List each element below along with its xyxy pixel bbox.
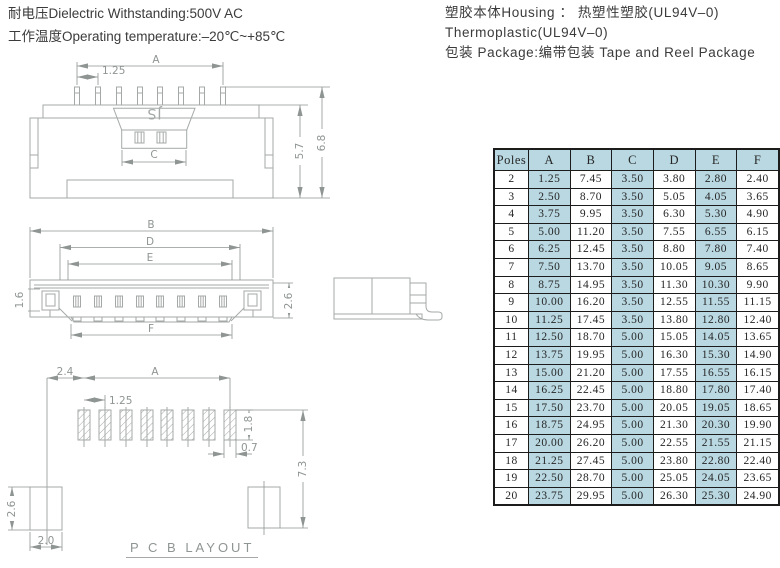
table-row: 77.5013.703.5010.059.058.65 bbox=[494, 258, 779, 276]
table-cell: 20.30 bbox=[695, 417, 737, 435]
table-cell: 26.30 bbox=[653, 487, 695, 505]
spec-line-withstanding: 耐电压Dielectric Withstanding:500V AC bbox=[8, 2, 285, 25]
key-details bbox=[135, 132, 166, 143]
table-cell: 8 bbox=[494, 276, 528, 294]
table-row: 1213.7519.955.0016.3015.3014.90 bbox=[494, 346, 779, 364]
table-cell: 6.15 bbox=[737, 223, 779, 241]
column-header: A bbox=[528, 149, 570, 171]
table-row: 1720.0026.205.0022.5521.5521.15 bbox=[494, 434, 779, 452]
table-cell: 5 bbox=[494, 223, 528, 241]
dimension-table: PolesABCDEF21.257.453.503.802.802.4032.5… bbox=[493, 148, 780, 506]
table-cell: 25.30 bbox=[695, 487, 737, 505]
pcb-pitch-label: 1.25 bbox=[109, 395, 132, 407]
dim-b: B bbox=[30, 219, 273, 278]
table-cell: 29.95 bbox=[570, 487, 612, 505]
column-header: D bbox=[653, 149, 695, 171]
table-cell: 1.25 bbox=[528, 171, 570, 189]
table-cell: 13.80 bbox=[653, 311, 695, 329]
top-outline bbox=[30, 280, 273, 322]
table-cell: 12.80 bbox=[695, 311, 737, 329]
table-row: 1011.2517.453.5013.8012.8012.40 bbox=[494, 311, 779, 329]
smt-foot bbox=[416, 303, 442, 320]
table-cell: 17.80 bbox=[695, 382, 737, 400]
table-cell: 6.25 bbox=[528, 241, 570, 259]
front-pitch-label: 1.25 bbox=[102, 65, 125, 77]
dim-c: C bbox=[122, 149, 186, 166]
table-cell: 2.40 bbox=[737, 171, 779, 189]
table-cell: 14.90 bbox=[737, 346, 779, 364]
table-cell: 18.75 bbox=[528, 417, 570, 435]
table-cell: 22.40 bbox=[737, 452, 779, 470]
table-cell: 14 bbox=[494, 382, 528, 400]
table-row: 1416.2522.455.0018.8017.8017.40 bbox=[494, 382, 779, 400]
table-cell: 2 bbox=[494, 171, 528, 189]
table-cell: 16.55 bbox=[695, 364, 737, 382]
pcb-offset-label: 2.4 bbox=[57, 366, 74, 378]
table-cell: 6.30 bbox=[653, 206, 695, 224]
table-cell: 13.75 bbox=[528, 346, 570, 364]
table-cell: 12 bbox=[494, 346, 528, 364]
table-cell: 26.20 bbox=[570, 434, 612, 452]
table-cell: 18 bbox=[494, 452, 528, 470]
table-cell: 22.80 bbox=[695, 452, 737, 470]
table-cell: 5.00 bbox=[612, 487, 654, 505]
table-row: 88.7514.953.5011.3010.309.90 bbox=[494, 276, 779, 294]
top-dim-e-label: E bbox=[147, 252, 154, 264]
table-cell: 18.80 bbox=[653, 382, 695, 400]
table-row: 1922.5028.705.0025.0524.0523.65 bbox=[494, 470, 779, 488]
front-dim-c-label: C bbox=[150, 149, 157, 161]
table-cell: 12.45 bbox=[570, 241, 612, 259]
table-cell: 19.95 bbox=[570, 346, 612, 364]
table-cell: 4.90 bbox=[737, 206, 779, 224]
table-cell: 21.25 bbox=[528, 452, 570, 470]
front-dim-a-label: A bbox=[152, 55, 160, 66]
table-cell: 12.40 bbox=[737, 311, 779, 329]
top-h-right-label: 2.6 bbox=[283, 292, 295, 309]
dim-e: E bbox=[68, 252, 232, 280]
table-cell: 3.50 bbox=[612, 294, 654, 312]
table-cell: 5.00 bbox=[612, 329, 654, 347]
table-cell: 8.75 bbox=[528, 276, 570, 294]
table-cell: 9.95 bbox=[570, 206, 612, 224]
solder-tails bbox=[73, 317, 227, 321]
table-cell: 23.70 bbox=[570, 399, 612, 417]
table-cell: 15.05 bbox=[653, 329, 695, 347]
front-h-body-label: 5.7 bbox=[294, 143, 306, 160]
dim-left-16: 1.6 bbox=[12, 288, 40, 312]
table-cell: 10.30 bbox=[695, 276, 737, 294]
table-cell: 15.00 bbox=[528, 364, 570, 382]
pcb-layout-title: P C B LAYOUT bbox=[126, 540, 258, 558]
table-cell: 24.90 bbox=[737, 487, 779, 505]
table-cell: 19 bbox=[494, 470, 528, 488]
table-cell: 14.95 bbox=[570, 276, 612, 294]
dim-offset-24: 2.4 bbox=[47, 366, 84, 378]
table-header-row: PolesABCDEF bbox=[494, 149, 779, 171]
table-cell: 3.65 bbox=[737, 188, 779, 206]
dim-a: A bbox=[77, 55, 223, 85]
table-cell: 10 bbox=[494, 311, 528, 329]
table-row: 66.2512.453.508.807.807.40 bbox=[494, 241, 779, 259]
dim-anchor-height: 2.6 bbox=[5, 487, 30, 530]
table-cell: 8.65 bbox=[737, 258, 779, 276]
spec-line-package: 包装 Package:编带包装 Tape and Reel Package bbox=[445, 43, 755, 63]
table-cell: 3 bbox=[494, 188, 528, 206]
table-cell: 19.05 bbox=[695, 399, 737, 417]
table-cell: 16.25 bbox=[528, 382, 570, 400]
pin-row bbox=[75, 87, 226, 105]
table-cell: 17.40 bbox=[737, 382, 779, 400]
table-cell: 3.50 bbox=[612, 206, 654, 224]
top-dim-d-label: D bbox=[146, 236, 154, 248]
table-cell: 21.30 bbox=[653, 417, 695, 435]
datasheet-page: 耐电压Dielectric Withstanding:500V AC 工作温度O… bbox=[0, 0, 780, 568]
js-logo: JS bbox=[146, 105, 162, 121]
table-cell: 23.75 bbox=[528, 487, 570, 505]
front-h-total-label: 6.8 bbox=[316, 135, 328, 152]
table-cell: 5.00 bbox=[612, 382, 654, 400]
table-cell: 22.50 bbox=[528, 470, 570, 488]
table-cell: 5.00 bbox=[612, 364, 654, 382]
table-row: 1112.5018.705.0015.0514.0513.65 bbox=[494, 329, 779, 347]
table-cell: 6.55 bbox=[695, 223, 737, 241]
table-cell: 10.00 bbox=[528, 294, 570, 312]
table-cell: 5.00 bbox=[612, 434, 654, 452]
dim-anchor-width: 2.0 bbox=[30, 532, 62, 551]
table-cell: 9 bbox=[494, 294, 528, 312]
table-cell: 7 bbox=[494, 258, 528, 276]
column-header: E bbox=[695, 149, 737, 171]
dim-pad-height: 1.8 bbox=[236, 410, 257, 440]
table-row: 1618.7524.955.0021.3020.3019.90 bbox=[494, 417, 779, 435]
pad-row bbox=[78, 407, 236, 447]
table-row: 1517.5023.705.0020.0519.0518.65 bbox=[494, 399, 779, 417]
table-row: 55.0011.203.507.556.556.15 bbox=[494, 223, 779, 241]
table-cell: 17.50 bbox=[528, 399, 570, 417]
table-cell: 5.00 bbox=[612, 346, 654, 364]
table-cell: 3.50 bbox=[612, 188, 654, 206]
spec-line-housing: 塑胶本体Housing ： 热塑性塑胶(UL94V–0) bbox=[445, 3, 755, 23]
top-view-drawing: B D E F 1.6 bbox=[12, 218, 304, 363]
table-cell: 3.50 bbox=[612, 258, 654, 276]
pcb-anchor-w-label: 2.0 bbox=[38, 535, 55, 547]
table-cell: 16 bbox=[494, 417, 528, 435]
dim-right-26: 2.6 bbox=[273, 283, 297, 318]
table-cell: 3.50 bbox=[612, 311, 654, 329]
table-cell: 15.30 bbox=[695, 346, 737, 364]
front-outline bbox=[30, 87, 273, 198]
table-cell: 11 bbox=[494, 329, 528, 347]
table-cell: 23.65 bbox=[737, 470, 779, 488]
dim-pad-width: 0.7 bbox=[208, 440, 258, 458]
spec-text-right: 塑胶本体Housing ： 热塑性塑胶(UL94V–0) Thermoplast… bbox=[445, 3, 755, 63]
table-row: 2023.7529.955.0026.3025.3024.90 bbox=[494, 487, 779, 505]
pcb-pad-w-label: 0.7 bbox=[241, 442, 258, 454]
table-cell: 7.40 bbox=[737, 241, 779, 259]
pcb-layout-drawing: 2.4 A 1.25 1.8 0.7 bbox=[5, 365, 340, 565]
table-cell: 10.05 bbox=[653, 258, 695, 276]
table-cell: 5.00 bbox=[612, 470, 654, 488]
table-cell: 3.75 bbox=[528, 206, 570, 224]
table-cell: 25.05 bbox=[653, 470, 695, 488]
column-header: F bbox=[737, 149, 779, 171]
table-cell: 13.70 bbox=[570, 258, 612, 276]
table-cell: 12.50 bbox=[528, 329, 570, 347]
pcb-pad-h-label: 1.8 bbox=[243, 416, 255, 433]
table-cell: 16.30 bbox=[653, 346, 695, 364]
table-cell: 21.15 bbox=[737, 434, 779, 452]
side-view-drawing bbox=[332, 270, 452, 332]
table-cell: 4 bbox=[494, 206, 528, 224]
front-view-drawing: JS A 1.25 C 5.7 6.8 bbox=[18, 55, 336, 205]
table-cell: 11.30 bbox=[653, 276, 695, 294]
table-cell: 23.80 bbox=[653, 452, 695, 470]
dimension-table-wrap: PolesABCDEF21.257.453.503.802.802.4032.5… bbox=[493, 148, 780, 506]
table-cell: 21.55 bbox=[695, 434, 737, 452]
table-cell: 2.50 bbox=[528, 188, 570, 206]
table-cell: 24.95 bbox=[570, 417, 612, 435]
table-cell: 7.80 bbox=[695, 241, 737, 259]
table-cell: 28.70 bbox=[570, 470, 612, 488]
top-dim-f-label: F bbox=[148, 323, 154, 335]
table-cell: 12.55 bbox=[653, 294, 695, 312]
spec-line-thermoplastic: Thermoplastic(UL94V–0) bbox=[445, 23, 755, 43]
dim-pitch-pcb: 1.25 bbox=[84, 395, 132, 408]
top-h-left-label: 1.6 bbox=[14, 291, 26, 308]
table-row: 43.759.953.506.305.304.90 bbox=[494, 206, 779, 224]
column-header: B bbox=[570, 149, 612, 171]
table-cell: 6 bbox=[494, 241, 528, 259]
table-cell: 20.00 bbox=[528, 434, 570, 452]
table-cell: 13.65 bbox=[737, 329, 779, 347]
table-cell: 22.45 bbox=[570, 382, 612, 400]
table-cell: 15 bbox=[494, 399, 528, 417]
top-dim-b-label: B bbox=[147, 219, 154, 231]
table-cell: 22.55 bbox=[653, 434, 695, 452]
table-cell: 5.00 bbox=[528, 223, 570, 241]
table-cell: 5.05 bbox=[653, 188, 695, 206]
table-row: 32.508.703.505.054.053.65 bbox=[494, 188, 779, 206]
dim-f: F bbox=[71, 323, 232, 339]
table-cell: 8.70 bbox=[570, 188, 612, 206]
spec-text-left: 耐电压Dielectric Withstanding:500V AC 工作温度O… bbox=[8, 2, 285, 48]
table-cell: 21.20 bbox=[570, 364, 612, 382]
table-cell: 2.80 bbox=[695, 171, 737, 189]
table-cell: 11.15 bbox=[737, 294, 779, 312]
dim-total-height: 6.8 bbox=[225, 87, 330, 198]
table-cell: 19.90 bbox=[737, 417, 779, 435]
dim-a-pcb: A bbox=[84, 366, 230, 408]
table-cell: 17 bbox=[494, 434, 528, 452]
table-cell: 17.55 bbox=[653, 364, 695, 382]
table-cell: 3.50 bbox=[612, 241, 654, 259]
table-cell: 7.45 bbox=[570, 171, 612, 189]
signal-pads bbox=[78, 410, 236, 440]
spec-line-temperature: 工作温度Operating temperature:–20℃~+85℃ bbox=[8, 25, 285, 48]
table-cell: 14.05 bbox=[695, 329, 737, 347]
table-cell: 11.25 bbox=[528, 311, 570, 329]
table-cell: 9.05 bbox=[695, 258, 737, 276]
dim-pitch: 1.25 bbox=[77, 65, 125, 85]
table-row: 1315.0021.205.0017.5516.5516.15 bbox=[494, 364, 779, 382]
table-cell: 5.00 bbox=[612, 417, 654, 435]
table-cell: 18.65 bbox=[737, 399, 779, 417]
contact-row bbox=[74, 296, 227, 307]
table-cell: 9.90 bbox=[737, 276, 779, 294]
pcb-anchor-h-label: 2.6 bbox=[6, 500, 18, 517]
table-cell: 24.05 bbox=[695, 470, 737, 488]
table-cell: 11.55 bbox=[695, 294, 737, 312]
column-header: C bbox=[612, 149, 654, 171]
table-cell: 5.00 bbox=[612, 399, 654, 417]
table-cell: 7.50 bbox=[528, 258, 570, 276]
table-row: 910.0016.203.5012.5511.5511.15 bbox=[494, 294, 779, 312]
table-cell: 8.80 bbox=[653, 241, 695, 259]
table-cell: 3.80 bbox=[653, 171, 695, 189]
side-outline bbox=[334, 278, 442, 320]
table-cell: 17.45 bbox=[570, 311, 612, 329]
table-cell: 3.50 bbox=[612, 276, 654, 294]
table-cell: 16.20 bbox=[570, 294, 612, 312]
column-header: Poles bbox=[494, 149, 528, 171]
table-cell: 20 bbox=[494, 487, 528, 505]
table-cell: 3.50 bbox=[612, 223, 654, 241]
pcb-dim-a-label: A bbox=[151, 366, 159, 378]
pcb-row-gap-label: 7.3 bbox=[297, 461, 309, 478]
table-cell: 20.05 bbox=[653, 399, 695, 417]
table-cell: 27.45 bbox=[570, 452, 612, 470]
table-cell: 4.05 bbox=[695, 188, 737, 206]
table-cell: 3.50 bbox=[612, 171, 654, 189]
table-row: 1821.2527.455.0023.8022.8022.40 bbox=[494, 452, 779, 470]
table-cell: 11.20 bbox=[570, 223, 612, 241]
table-row: 21.257.453.503.802.802.40 bbox=[494, 171, 779, 189]
table-cell: 16.15 bbox=[737, 364, 779, 382]
table-cell: 5.30 bbox=[695, 206, 737, 224]
table-cell: 5.00 bbox=[612, 452, 654, 470]
anchor-pad-left bbox=[30, 487, 62, 530]
table-cell: 7.55 bbox=[653, 223, 695, 241]
table-cell: 18.70 bbox=[570, 329, 612, 347]
table-cell: 13 bbox=[494, 364, 528, 382]
